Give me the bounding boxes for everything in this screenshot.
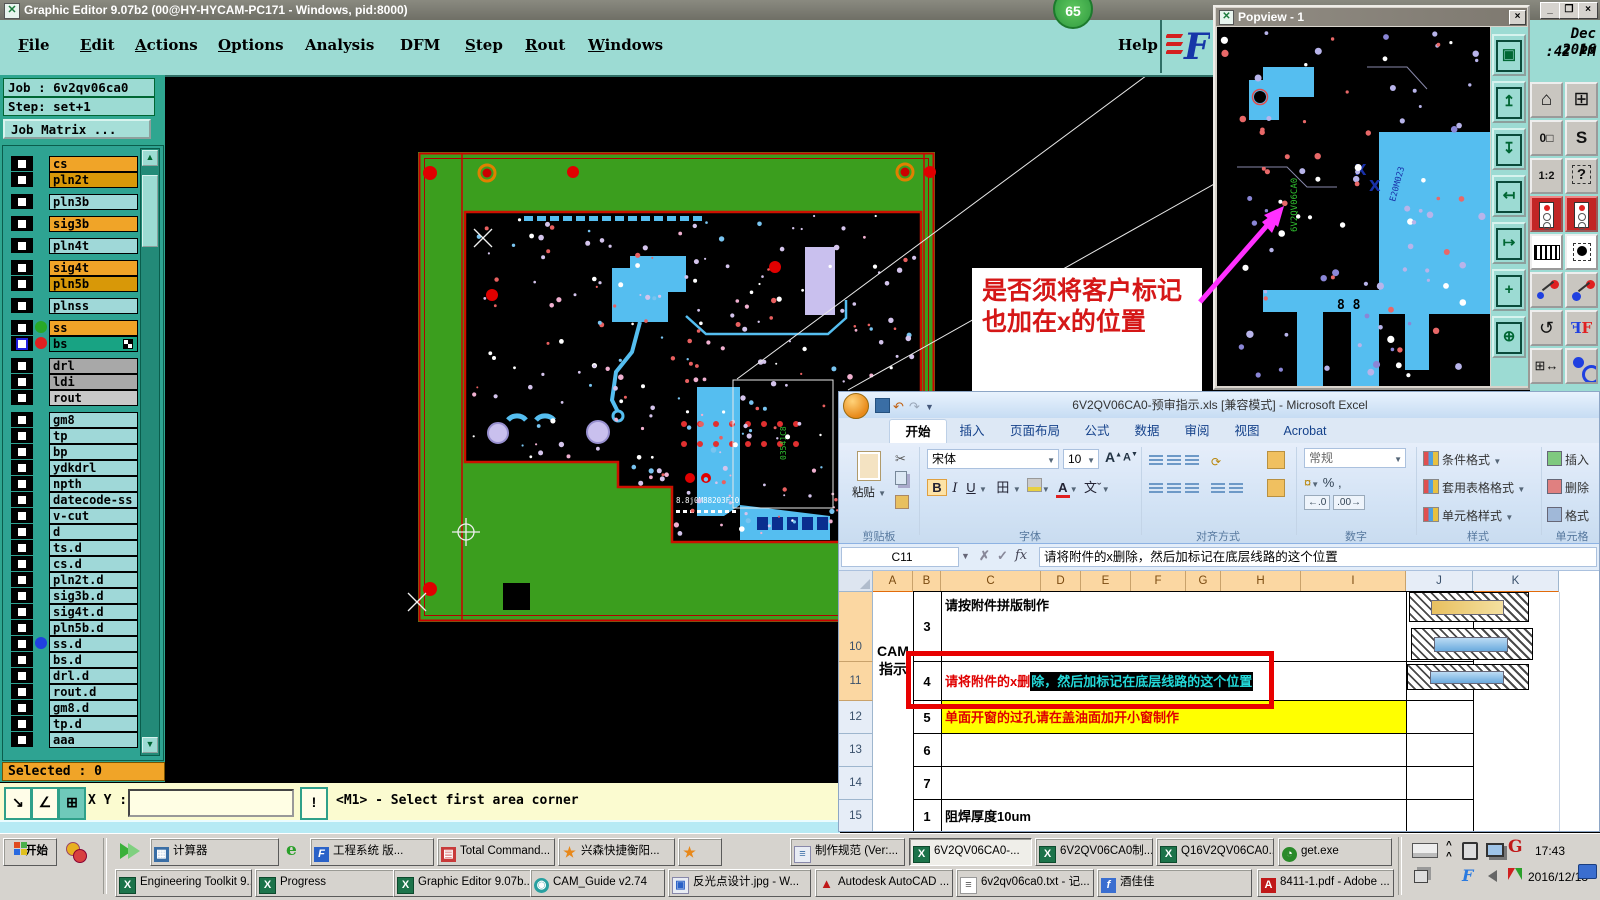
layer-name: pln4t [49, 238, 138, 254]
layer-row-ldi[interactable]: ldi [7, 374, 159, 390]
xy-window-icon[interactable]: ⊞ [1565, 82, 1598, 118]
ge-right-panel: Dec 2016 :42 PM ⌂⊞0□S1:2?↺FF⊞↔ [1530, 20, 1600, 392]
save-icon[interactable] [875, 398, 890, 413]
status-message: <M1> - Select first area corner [336, 793, 579, 808]
layer-checkbox[interactable] [11, 524, 33, 539]
embedded-image-2[interactable] [1411, 628, 1533, 660]
layer-checkbox[interactable] [11, 194, 33, 209]
layer-name: npth [49, 476, 138, 492]
column-header-D[interactable]: D [1041, 571, 1081, 592]
layer-row-cs[interactable]: cs [7, 156, 159, 172]
qat-dropdown-icon[interactable]: ▼ [925, 394, 934, 420]
excel-formula-bar: C11 ▼ ✗ ✓ fx 请将附件的x删除，然后加标记在底层线路的这个位置 [839, 544, 1600, 571]
layer-row-pln2t.d[interactable]: pln2t.d [7, 572, 159, 588]
align-middle-icon[interactable] [1167, 455, 1181, 466]
layer-row-pln4t[interactable]: pln4t [7, 238, 159, 254]
embedded-image-3[interactable] [1407, 664, 1529, 690]
taskbar-button-Graphic Editor 9.07b...[interactable]: XGraphic Editor 9.07b... [393, 869, 535, 897]
layer-name: ldi [49, 374, 138, 390]
menu-analysis[interactable]: Analysis [305, 36, 374, 54]
excel-window: ↶ ↷ ▼ 6V2QV06CA0-预审指示.xls [兼容模式] - Micro… [838, 391, 1600, 832]
tab-数据[interactable]: 数据 [1123, 419, 1171, 443]
taskbar-button-6v2qv06ca0.txt - 记...[interactable]: ≡6v2qv06ca0.txt - 记... [956, 869, 1094, 897]
layer-checkbox[interactable] [11, 260, 33, 275]
popview-icon: ✕ [1219, 10, 1234, 25]
comma-icon[interactable]: , [1338, 475, 1342, 490]
windows-logo-icon [6, 842, 21, 857]
layer-row-gm8.d[interactable]: gm8.d [7, 700, 159, 716]
font-color-button[interactable]: A [1056, 480, 1070, 498]
layer-row-ss.d[interactable]: ss.d [7, 636, 159, 652]
menu-windows[interactable]: Windows [588, 36, 663, 54]
copy-pad-icon[interactable] [1565, 272, 1598, 308]
group-label: 数字 [1298, 528, 1414, 544]
red-annotation-box [906, 651, 1274, 709]
move-pad-icon[interactable] [1530, 272, 1563, 308]
enter-icon[interactable]: ✓ [997, 548, 1008, 564]
layer-name: gm8.d [49, 700, 138, 716]
taskbar-button-反光点设计.jpg - W...[interactable]: ▣反光点设计.jpg - W... [668, 869, 811, 897]
layer-row-tp.d[interactable]: tp.d [7, 716, 159, 732]
taskbar-button-Q16V2QV06CA0...[interactable]: XQ16V2QV06CA0... [1156, 838, 1274, 866]
column-header-C[interactable]: C [941, 571, 1041, 592]
close-button[interactable]: × [1578, 2, 1598, 19]
column-header-I[interactable]: I [1301, 571, 1406, 592]
layer-color-dot [35, 321, 47, 333]
tab-Acrobat[interactable]: Acrobat [1273, 419, 1337, 443]
help-icon[interactable]: ? [1565, 158, 1598, 194]
taskbar-button-计算器[interactable]: ▦计算器 [150, 838, 279, 866]
menu-dfm[interactable]: DFM [400, 36, 440, 54]
layer-row-pln5b[interactable]: pln5b [7, 276, 159, 292]
select-mode-icon[interactable]: ↘ [4, 787, 32, 820]
taskbar-button-CAM_Guide v2.74[interactable]: ◉CAM_Guide v2.74 [530, 869, 665, 897]
layer-row-rout[interactable]: rout [7, 390, 159, 406]
layer-row-tp[interactable]: tp [7, 428, 159, 444]
layer-name: plnss [49, 298, 138, 314]
layer-name: datecode-ss [49, 492, 138, 508]
svg-text:X: X [1369, 177, 1381, 195]
tray-time: 17:43 [1535, 844, 1565, 858]
layer-checkbox[interactable] [11, 476, 33, 491]
taskbar-button-6V2QV06CA0制...[interactable]: X6V2QV06CA0制... [1035, 838, 1153, 866]
row-header-13[interactable]: 13 [839, 734, 873, 767]
taskbar-button-Engineering Toolkit 9...[interactable]: XEngineering Toolkit 9... [115, 869, 252, 897]
layer-row-rout.d[interactable]: rout.d [7, 684, 159, 700]
group-separator [919, 447, 920, 535]
frontline-logo: F [1166, 26, 1210, 70]
layer-checkbox[interactable] [11, 652, 33, 667]
layer-row-pln3b[interactable]: pln3b [7, 194, 159, 210]
layer-name: ydkdrl [49, 460, 138, 476]
layer-row-ydkdrl[interactable]: ydkdrl [7, 460, 159, 476]
layer-checkbox[interactable] [11, 358, 33, 373]
layer-row-npth[interactable]: npth [7, 476, 159, 492]
tray-expand-icon[interactable]: ^^ [1446, 840, 1452, 862]
align-bottom-row [1149, 481, 1247, 499]
taskbar-button-8411-1.pdf - Adobe ...[interactable]: A8411-1.pdf - Adobe ... [1257, 869, 1394, 897]
layer-row-ts.d[interactable]: ts.d [7, 540, 159, 556]
layer-row-d[interactable]: d [7, 524, 159, 540]
decrease-indent-icon[interactable] [1211, 483, 1225, 494]
layer-checkbox[interactable] [11, 572, 33, 587]
layer-checkbox[interactable] [11, 588, 33, 603]
decrease-font-icon[interactable]: A▼ [1123, 451, 1138, 464]
increase-decimal-icon[interactable]: ←.0 [1304, 495, 1330, 510]
pv-down-icon[interactable]: ↧ [1492, 128, 1526, 170]
cells-delete-button[interactable]: 删除 [1547, 479, 1589, 496]
menu-step[interactable]: Step [465, 36, 503, 54]
menu-options[interactable]: Options [218, 36, 284, 54]
network-icon[interactable] [1486, 843, 1504, 857]
row-header-15[interactable]: 15 [839, 800, 873, 832]
layer-name: sig3b.d [49, 588, 138, 604]
name-box[interactable]: C11 [841, 547, 959, 567]
taskbar-button-Progress[interactable]: XProgress [255, 869, 395, 897]
layer-checkbox[interactable] [11, 172, 33, 187]
step-label: Step: set+1 [3, 97, 155, 116]
row-header-14[interactable]: 14 [839, 767, 873, 800]
align-top-icon[interactable] [1149, 455, 1163, 466]
messenger-icon[interactable] [66, 842, 86, 862]
start-button[interactable]: 开始 [3, 838, 57, 866]
popview-close-icon[interactable]: × [1509, 10, 1526, 25]
increase-indent-icon[interactable] [1229, 483, 1243, 494]
layer-checkbox[interactable] [11, 732, 33, 747]
layer-checkbox[interactable] [11, 492, 33, 507]
cell-b-14[interactable]: 7 [913, 767, 941, 800]
popview-canvas[interactable]: 6V2QV06CA0 XX E20M023 8 8 [1217, 27, 1490, 386]
snap-objects-icon[interactable] [1565, 348, 1598, 384]
rotate-icon[interactable]: ↺ [1530, 310, 1563, 346]
orientation-icon[interactable]: ⟳ [1211, 455, 1221, 469]
group-label: 样式 [1418, 528, 1538, 544]
tab-开始[interactable]: 开始 [889, 419, 947, 444]
font-name-select[interactable]: 宋体▼ [927, 449, 1059, 469]
layer-checkbox[interactable] [11, 460, 33, 475]
layer-row-drl.d[interactable]: drl.d [7, 668, 159, 684]
column-header-H[interactable]: H [1221, 571, 1301, 592]
increase-font-icon[interactable]: A▲ [1105, 449, 1122, 465]
layer-row-sig4t.d[interactable]: sig4t.d [7, 604, 159, 620]
layer-name: rout.d [49, 684, 138, 700]
cancel-icon[interactable]: ✗ [979, 548, 990, 564]
pv-expand-icon[interactable]: + [1492, 269, 1526, 311]
pv-exit-right-icon[interactable]: ↦ [1492, 222, 1526, 264]
minimize-button[interactable]: _ [1540, 2, 1560, 19]
number-icons-row: ¤▼ % , [1304, 475, 1342, 490]
column-header-K[interactable]: K [1473, 571, 1559, 592]
border-button[interactable]: 田 [993, 477, 1013, 496]
group-separator [1541, 447, 1542, 535]
xy-input[interactable] [128, 789, 294, 817]
menu-help[interactable]: Help [1118, 36, 1158, 54]
mirror-icon[interactable]: FF [1565, 310, 1598, 346]
layer-row-plnss[interactable]: plnss [7, 298, 159, 314]
phonetic-button[interactable]: 文ˇ [1084, 477, 1102, 496]
quicklaunch-swoosh-icon2[interactable] [128, 843, 140, 859]
layer-name: pln3b [49, 194, 138, 210]
layer-name: sig4t [49, 260, 138, 276]
layer-checkbox[interactable] [11, 668, 33, 683]
layer-name: sig4t.d [49, 604, 138, 620]
layer-name: bp [49, 444, 138, 460]
percent-icon[interactable]: % [1323, 475, 1335, 490]
paste-button[interactable]: 粘贴 ▼ [847, 449, 891, 523]
job-matrix-button[interactable]: Job Matrix ... [3, 119, 151, 139]
layer-checkbox[interactable] [11, 336, 33, 351]
taskbar: 开始 e ▦计算器F工程系统 版...▤Total Command...★兴森快… [0, 833, 1600, 900]
image-thumb [1434, 637, 1508, 653]
taskbar-button-制作规范 (Ver:...[interactable]: ≡制作规范 (Ver:... [790, 838, 905, 866]
layer-checkbox[interactable] [11, 298, 33, 313]
layer-name: ts.d [49, 540, 138, 556]
layer-row-aaa[interactable]: aaa [7, 732, 159, 748]
column-header-E[interactable]: E [1081, 571, 1131, 592]
cells-format-button[interactable]: 格式 [1547, 507, 1589, 524]
name-box-dropdown-icon[interactable]: ▼ [961, 551, 970, 561]
layer-name: pln2t [49, 172, 138, 188]
column-header-A[interactable]: A [873, 571, 913, 592]
insert-function-icon[interactable]: fx [1015, 548, 1027, 563]
menu-edit[interactable]: Edit [80, 36, 115, 54]
group-label: 剪贴板 [841, 528, 917, 544]
layer-name: ss [49, 320, 138, 336]
font-size-select[interactable]: 10▼ [1063, 449, 1099, 469]
row-header-12[interactable]: 12 [839, 701, 873, 734]
ie-icon[interactable]: e [286, 840, 297, 860]
taskbar-button-兴森快捷衡阳...[interactable]: ★兴森快捷衡阳... [558, 838, 675, 866]
wrap-text-icon[interactable] [1267, 451, 1285, 469]
menu-rout[interactable]: Rout [525, 36, 565, 54]
taskbar-button-star[interactable]: ★ [678, 838, 722, 866]
group-separator [1296, 447, 1297, 535]
tab-审阅[interactable]: 审阅 [1173, 419, 1221, 443]
layer-name: d [49, 524, 138, 540]
font-style-row: BIU▼田▼▼A▼文ˇ▼ [927, 477, 1110, 498]
layer-name: cs.d [49, 556, 138, 572]
popview-copper [1249, 67, 1490, 386]
menu-actions[interactable]: Actions [135, 36, 198, 54]
group-label: 对齐方式 [1143, 528, 1293, 544]
tab-视图[interactable]: 视图 [1223, 419, 1271, 443]
style-format-as-table-button[interactable]: 套用表格格式 ▼ [1423, 479, 1525, 496]
layer-name: pln5b [49, 276, 138, 292]
group-label: 单元格 [1543, 528, 1600, 544]
layer-row-cs.d[interactable]: cs.d [7, 556, 159, 572]
excel-titlebar[interactable]: ↶ ↷ ▼ 6V2QV06CA0-预审指示.xls [兼容模式] - Micro… [839, 392, 1600, 418]
layer-checkbox[interactable] [11, 620, 33, 635]
layer-row-bp[interactable]: bp [7, 444, 159, 460]
grid-mode-icon[interactable]: ⊞ [58, 787, 86, 820]
shape-select-icon[interactable]: 0□ [1530, 120, 1563, 156]
copy-icon[interactable] [895, 471, 907, 485]
layer-row-bs[interactable]: bs [7, 336, 159, 352]
align-bottom-icon[interactable] [1185, 455, 1199, 466]
tab-页面布局[interactable]: 页面布局 [999, 419, 1071, 443]
pv-center-icon[interactable]: ⊕ [1492, 316, 1526, 358]
layer-row-pln5b.d[interactable]: pln5b.d [7, 620, 159, 636]
menu-file[interactable]: File [18, 36, 50, 54]
feiq-tray-icon[interactable]: F [1462, 866, 1473, 885]
layer-checkbox[interactable] [11, 716, 33, 731]
angle-mode-icon[interactable]: ∠ [31, 787, 59, 820]
undo-icon[interactable]: ↶ [893, 394, 904, 420]
layer-color-dot [35, 637, 47, 649]
route-path-icon[interactable]: S [1565, 120, 1598, 156]
window-tray-icon[interactable] [1414, 870, 1428, 883]
select-all-corner[interactable] [839, 571, 873, 592]
fill-color-button[interactable] [1027, 478, 1042, 492]
image-thumb [1431, 600, 1504, 615]
layer-name: rout [49, 390, 138, 406]
layer-checkbox[interactable] [11, 604, 33, 619]
power-plug-icon[interactable] [1462, 842, 1478, 860]
layer-row-sig4t[interactable]: sig4t [7, 260, 159, 276]
excel-grid[interactable]: ABCDEFGHIJK101112131415CAM指示3请按附件拼版制作4请将… [839, 571, 1600, 832]
xy-label: X Y : [88, 793, 127, 808]
align-top-row: ⟳ [1149, 453, 1221, 471]
number-format-select[interactable]: 常规▼ [1304, 448, 1406, 468]
decrease-decimal-icon[interactable]: .00→ [1333, 495, 1365, 510]
layer-checkbox[interactable] [11, 276, 33, 291]
layer-name: drl.d [49, 668, 138, 684]
pv-up-icon[interactable]: ↥ [1492, 81, 1526, 123]
dcode-panel-icon[interactable] [1530, 196, 1563, 232]
taskbar-button-Total Command...[interactable]: ▤Total Command... [437, 838, 555, 866]
show-desktop-icon[interactable] [1578, 864, 1597, 879]
formula-field[interactable]: 请将附件的x删除，然后加标记在底层线路的这个位置 [1039, 547, 1597, 567]
bold-button[interactable]: B [927, 479, 947, 496]
row-header-11[interactable]: 11 [839, 662, 873, 701]
row-header-10[interactable]: 10 [839, 592, 873, 662]
pad-select-icon[interactable] [1565, 234, 1598, 270]
layer-checkbox[interactable] [11, 374, 33, 389]
layer-checkbox[interactable] [11, 700, 33, 715]
layer-name: sig3b [49, 216, 138, 232]
layer-name: pln5b.d [49, 620, 138, 636]
ime-flag-icon[interactable] [1508, 868, 1522, 880]
layer-row-sig3b[interactable]: sig3b [7, 216, 159, 232]
italic-button[interactable]: I [947, 481, 963, 496]
style-cell-styles-button[interactable]: 单元格样式 ▼ [1423, 507, 1513, 524]
layer-row-sig3b.d[interactable]: sig3b.d [7, 588, 159, 604]
layer-checkbox[interactable] [11, 238, 33, 253]
taskbar-button-工程系统 版...[interactable]: F工程系统 版... [310, 838, 434, 866]
scale-1-2-icon[interactable]: 1:2 [1530, 158, 1563, 194]
pv-window-icon[interactable]: ▣ [1492, 34, 1526, 76]
layer-name: tp [49, 428, 138, 444]
layer-row-drl[interactable]: drl [7, 358, 159, 374]
embedded-image-1[interactable] [1409, 592, 1529, 622]
column-header-J[interactable]: J [1406, 571, 1473, 592]
layer-name: cs [49, 156, 138, 172]
popview-titlebar[interactable]: ✕ Popview - 1 × [1216, 8, 1527, 26]
layer-row-gm8[interactable]: gm8 [7, 412, 159, 428]
sogou-icon[interactable]: G [1508, 837, 1523, 857]
keyboard-tray-icon[interactable] [1412, 843, 1438, 858]
layer-checkbox[interactable] [11, 412, 33, 427]
ge-sidebar: Job : 6v2qv06ca0 Step: set+1 Job Matrix … [0, 75, 165, 783]
taskbar-button-Autodesk AutoCAD ...[interactable]: ▲Autodesk AutoCAD ... [815, 869, 953, 897]
layer-row-bs.d[interactable]: bs.d [7, 652, 159, 668]
excel-ribbon: 剪贴板字体对齐方式数字样式单元格粘贴 ▼✂宋体▼10▼A▲A▼BIU▼田▼▼A▼… [839, 443, 1600, 544]
align-center-icon[interactable] [1167, 483, 1181, 494]
alert-button[interactable]: ! [300, 787, 328, 820]
cells-insert-button[interactable]: 插入 [1547, 451, 1589, 468]
align-left-icon[interactable] [1149, 483, 1163, 494]
cell-b-13[interactable]: 6 [913, 734, 941, 767]
grid-vline [1559, 592, 1560, 832]
tab-公式[interactable]: 公式 [1073, 419, 1121, 443]
layer-row-v-cut[interactable]: v-cut [7, 508, 159, 524]
office-button[interactable] [843, 393, 869, 419]
column-header-F[interactable]: F [1131, 571, 1186, 592]
layer-checkbox[interactable] [11, 540, 33, 555]
taskbar-button-6V2QV06CA0-...[interactable]: X6V2QV06CA0-... [909, 838, 1032, 866]
layer-checkbox[interactable] [11, 684, 33, 699]
popview-silkscreen-green: 6V2QV06CA0 [1290, 178, 1300, 232]
format-painter-icon[interactable] [895, 495, 909, 509]
pv-exit-left-icon[interactable]: ↤ [1492, 175, 1526, 217]
layer-row-datecode-ss[interactable]: datecode-ss [7, 492, 159, 508]
taskbar-button-酒佳佳[interactable]: f酒佳佳 [1097, 869, 1252, 897]
column-header-B[interactable]: B [913, 571, 941, 592]
layer-checkbox[interactable] [11, 636, 33, 651]
merge-center-icon[interactable] [1267, 479, 1285, 497]
popview-eights: 8 8 [1337, 298, 1361, 313]
layer-checkbox[interactable] [11, 508, 33, 523]
layer-row-pln2t[interactable]: pln2t [7, 172, 159, 188]
underline-button[interactable]: U [963, 480, 979, 495]
taskbar-button-get.exe[interactable]: ◔get.exe [1278, 838, 1392, 866]
selected-count: Selected : 0 [2, 762, 165, 781]
volume-icon[interactable] [1488, 870, 1497, 882]
dimension-icon[interactable]: ⊞↔ [1530, 348, 1563, 384]
group-separator [1416, 447, 1417, 535]
layer-checkbox[interactable] [11, 428, 33, 443]
column-header-G[interactable]: G [1186, 571, 1221, 592]
style-conditional-format-button[interactable]: 条件格式 ▼ [1423, 451, 1501, 468]
layer-grid-icon [123, 339, 133, 349]
dcode-panel2-icon[interactable] [1565, 196, 1598, 232]
restore-button[interactable]: ❐ [1559, 2, 1579, 19]
tab-插入[interactable]: 插入 [947, 419, 997, 443]
home-icon[interactable]: ⌂ [1530, 82, 1563, 118]
layer-checkbox[interactable] [11, 444, 33, 459]
cell-c-15[interactable]: 阻焊厚度10um [945, 800, 1031, 832]
annotation-line2: 也加在x的位置 [982, 307, 1192, 338]
layer-checkbox[interactable] [11, 556, 33, 571]
layer-checkbox[interactable] [11, 320, 33, 335]
redo-icon[interactable]: ↷ [909, 394, 920, 420]
layer-name: pln2t.d [49, 572, 138, 588]
layer-row-ss[interactable]: ss [7, 320, 159, 336]
popview-title-text: Popview - 1 [1238, 8, 1304, 26]
layer-name: gm8 [49, 412, 138, 428]
menubar-divider [1160, 20, 1162, 73]
cut-icon[interactable]: ✂ [895, 451, 906, 467]
layer-checkbox[interactable] [11, 156, 33, 171]
layer-name: drl [49, 358, 138, 374]
cell-b-15[interactable]: 1 [913, 800, 941, 832]
ge-statusbar: ↘ ∠ ⊞ X Y : ! <M1> - Select first area c… [0, 782, 840, 821]
ruler-icon[interactable] [1530, 234, 1563, 270]
align-right-icon[interactable] [1185, 483, 1199, 494]
layer-checkbox[interactable] [11, 216, 33, 231]
layer-checkbox[interactable] [11, 390, 33, 405]
board-silkscreen-green: 03541C8 [779, 426, 788, 460]
